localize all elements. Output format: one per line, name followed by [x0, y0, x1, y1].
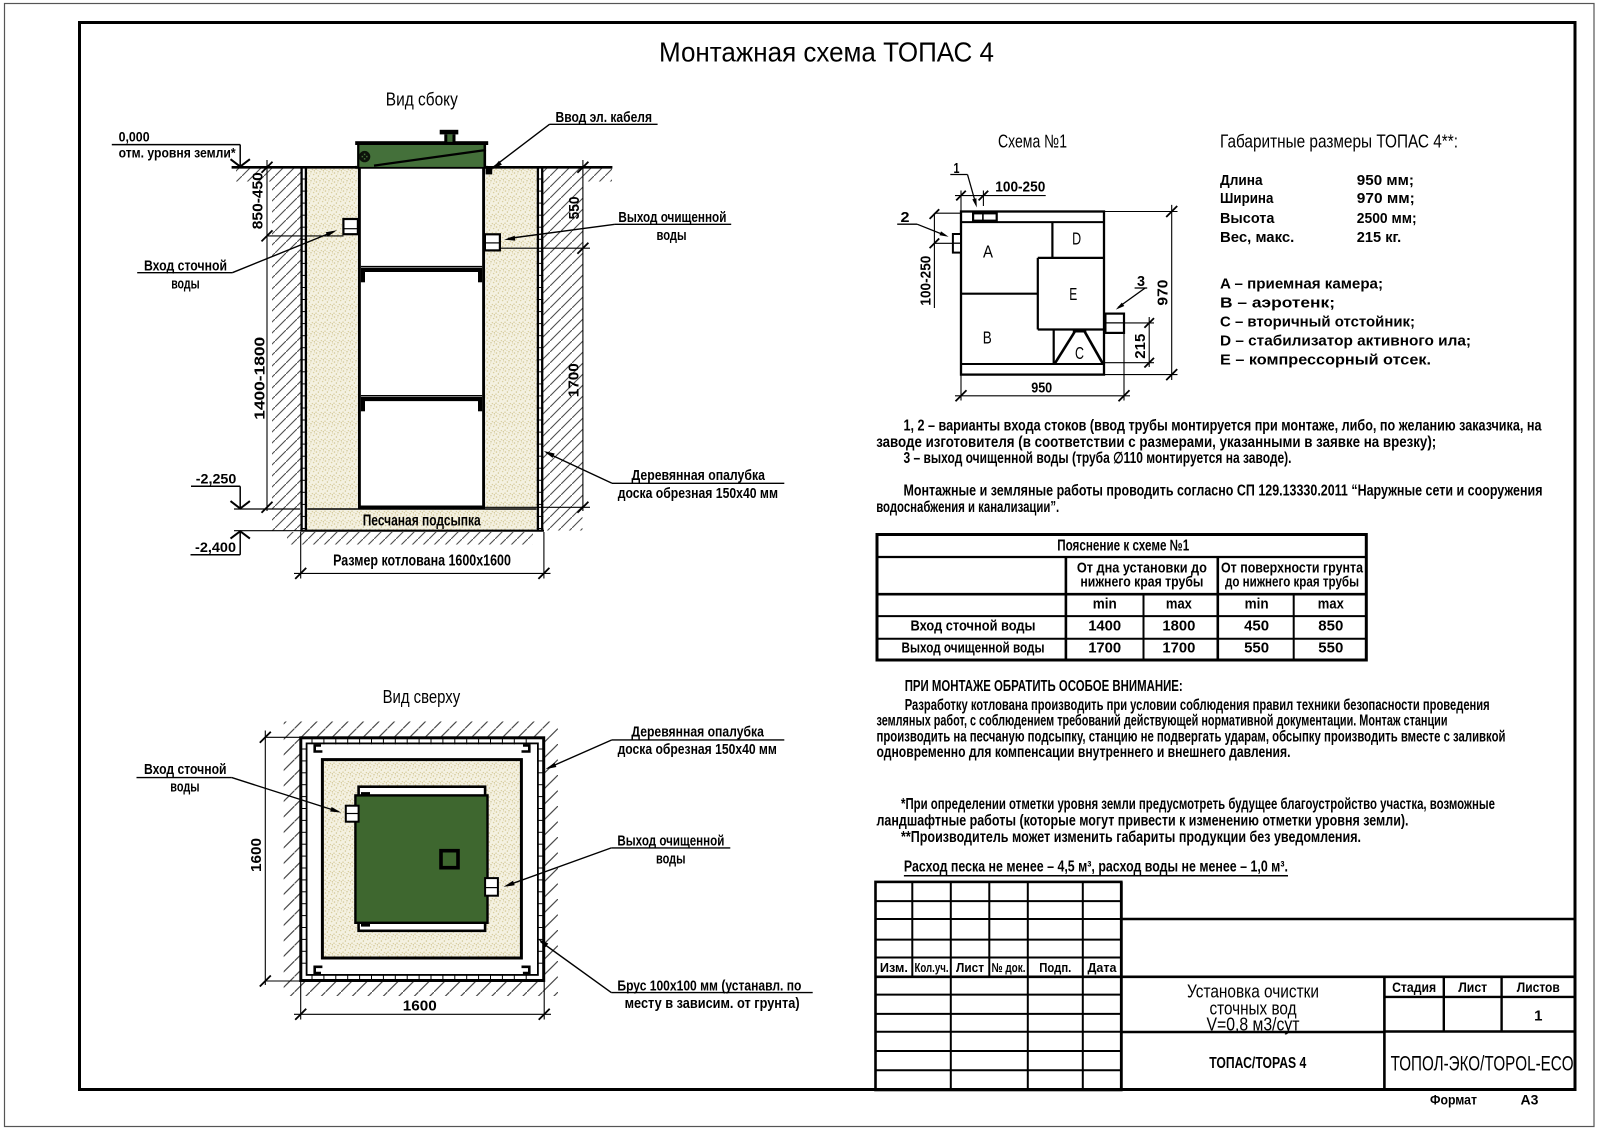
svg-text:215: 215: [1132, 334, 1149, 359]
svg-text:Формат: Формат: [1430, 1092, 1477, 1108]
svg-text:100-250: 100-250: [917, 256, 934, 306]
svg-text:1700: 1700: [566, 363, 583, 397]
svg-text:Монтажные и земляные работы пр: Монтажные и земляные работы проводить со…: [904, 483, 1543, 500]
svg-text:месту в зависим. от грунта): месту в зависим. от грунта): [625, 995, 800, 1012]
svg-text:воды: воды: [657, 227, 687, 244]
svg-text:воды: воды: [170, 779, 199, 796]
svg-text:доска обрезная 150х40 мм: доска обрезная 150х40 мм: [618, 485, 778, 502]
svg-text:Подп.: Подп.: [1039, 960, 1071, 975]
svg-text:1800: 1800: [1162, 618, 1195, 635]
svg-text:Изм.: Изм.: [880, 960, 908, 975]
svg-text:1700: 1700: [1088, 640, 1121, 657]
svg-text:Лист: Лист: [956, 960, 984, 975]
svg-text:B – аэротенк;: B – аэротенк;: [1220, 295, 1335, 312]
svg-text:Высота: Высота: [1220, 210, 1275, 227]
svg-text:Деревянная опалубка: Деревянная опалубка: [632, 467, 766, 484]
svg-text:min: min: [1245, 596, 1269, 613]
svg-text:водоснабжения и канализации”.: водоснабжения и канализации”.: [876, 499, 1059, 516]
svg-text:Вход сточной: Вход сточной: [144, 761, 227, 778]
svg-text:1700: 1700: [1162, 640, 1195, 657]
svg-text:550: 550: [566, 196, 583, 219]
svg-text:B: B: [983, 327, 992, 347]
svg-text:воды: воды: [656, 851, 686, 868]
svg-text:1, 2 – варианты входа стоков: 1, 2 – варианты входа стоков (ввод трубы…: [904, 417, 1542, 434]
svg-text:max: max: [1166, 596, 1193, 613]
svg-text:V=0,8 м3/сут: V=0,8 м3/сут: [1207, 1014, 1300, 1035]
svg-text:нижнего края трубы: нижнего края трубы: [1080, 573, 1203, 590]
svg-text:№ док.: № док.: [992, 960, 1026, 975]
svg-text:Выход очищенной: Выход очищенной: [617, 833, 724, 850]
svg-text:заводе изготовителя (в соответ: заводе изготовителя (в соответствии с ра…: [876, 434, 1436, 451]
svg-text:A: A: [983, 242, 993, 262]
svg-text:Кол.уч.: Кол.уч.: [915, 960, 949, 975]
svg-text:одновременно для компенсации в: одновременно для компенсации внутреннего…: [877, 744, 1291, 761]
svg-text:Вход сточной: Вход сточной: [144, 257, 227, 274]
svg-text:производить на песчаную подсып: производить на песчаную подсыпку, станци…: [877, 728, 1506, 745]
svg-text:Выход очищенной: Выход очищенной: [618, 209, 726, 226]
svg-text:-2,400: -2,400: [195, 540, 236, 555]
svg-text:отм. уровня земли*: отм. уровня земли*: [119, 146, 237, 161]
svg-text:550: 550: [1318, 640, 1343, 657]
svg-text:1600: 1600: [248, 838, 265, 872]
svg-text:3: 3: [1137, 273, 1145, 290]
svg-text:ТОПОЛ-ЭКО/TOPOL-ECO: ТОПОЛ-ЭКО/TOPOL-ECO: [1391, 1052, 1574, 1075]
svg-text:Вес, макс.: Вес, макс.: [1220, 229, 1294, 246]
svg-text:ПРИ МОНТАЖЕ ОБРАТИТЬ ОСОБОЕ ВН: ПРИ МОНТАЖЕ ОБРАТИТЬ ОСОБОЕ ВНИМАНИЕ:: [905, 678, 1183, 695]
svg-text:C – вторичный отстойник;: C – вторичный отстойник;: [1220, 314, 1415, 331]
svg-text:Монтажная схема ТОПАС 4: Монтажная схема ТОПАС 4: [659, 37, 994, 68]
svg-text:850-450: 850-450: [250, 172, 267, 229]
svg-text:550: 550: [1244, 640, 1269, 657]
svg-text:земляных работ, с соблюдением: земляных работ, с соблюдением требований…: [877, 713, 1448, 730]
svg-text:Разработку котлована производи: Разработку котлована производить при усл…: [905, 697, 1490, 714]
svg-text:0,000: 0,000: [119, 130, 150, 145]
svg-text:D: D: [1072, 229, 1081, 249]
svg-text:Стадия: Стадия: [1392, 979, 1436, 995]
svg-text:Ширина: Ширина: [1220, 190, 1274, 207]
svg-text:**Производитель может изменить: **Производитель может изменить габариты …: [901, 829, 1361, 846]
svg-text:1600: 1600: [403, 998, 437, 1015]
svg-text:Расход песка не менее – 4,5 м³: Расход песка не менее – 4,5 м³, расход в…: [904, 859, 1288, 876]
svg-text:воды: воды: [171, 275, 199, 292]
svg-text:215 кг.: 215 кг.: [1357, 229, 1401, 246]
svg-text:1400: 1400: [1088, 618, 1121, 635]
svg-text:850: 850: [1318, 618, 1343, 635]
svg-text:1400-1800: 1400-1800: [251, 337, 268, 420]
svg-text:Размер котлована 1600х1600: Размер котлована 1600х1600: [333, 552, 511, 569]
svg-text:Листов: Листов: [1517, 979, 1560, 995]
svg-text:Пояснение к схеме №1: Пояснение к схеме №1: [1057, 537, 1189, 554]
svg-text:*При определении отметки уровн: *При определении отметки уровня земли пр…: [901, 796, 1495, 813]
svg-text:ландшафтные работы (которые мо: ландшафтные работы (которые могут привес…: [877, 812, 1409, 829]
svg-text:А3: А3: [1521, 1092, 1539, 1108]
svg-text:970: 970: [1155, 280, 1172, 306]
svg-text:Габаритные размеры ТОПАС 4**:: Габаритные размеры ТОПАС 4**:: [1220, 131, 1458, 152]
svg-text:A – приемная камера;: A – приемная камера;: [1220, 276, 1383, 293]
svg-text:950 мм;: 950 мм;: [1357, 172, 1414, 189]
svg-text:E – компрессорный отсек.: E – компрессорный отсек.: [1220, 352, 1431, 369]
svg-text:D – стабилизатор активного ила: D – стабилизатор активного ила;: [1220, 333, 1471, 350]
svg-text:доска обрезная 150х40 мм: доска обрезная 150х40 мм: [618, 741, 777, 758]
svg-text:100-250: 100-250: [995, 179, 1045, 196]
svg-text:-2,250: -2,250: [196, 471, 237, 486]
svg-text:Ввод эл. кабеля: Ввод эл. кабеля: [556, 109, 653, 126]
svg-text:Деревянная опалубка: Деревянная опалубка: [631, 724, 764, 741]
svg-text:Дата: Дата: [1088, 960, 1118, 975]
svg-text:Вид сверху: Вид сверху: [383, 686, 461, 707]
svg-text:C: C: [1075, 343, 1084, 363]
svg-text:450: 450: [1244, 618, 1269, 635]
svg-text:2: 2: [901, 209, 910, 226]
svg-text:E: E: [1069, 284, 1077, 304]
svg-text:970 мм;: 970 мм;: [1357, 190, 1415, 207]
svg-text:3 – выход очищенной воды (труб: 3 – выход очищенной воды (труба ∅110 мон…: [904, 450, 1292, 467]
svg-text:Выход очищенной воды: Выход очищенной воды: [902, 640, 1045, 657]
svg-text:Лист: Лист: [1458, 979, 1487, 995]
svg-text:Вход сточной воды: Вход сточной воды: [911, 618, 1036, 635]
svg-text:950: 950: [1031, 380, 1052, 397]
svg-text:1: 1: [1534, 1008, 1542, 1025]
svg-text:max: max: [1318, 596, 1345, 613]
svg-text:ТОПАС/TOPAS 4: ТОПАС/TOPAS 4: [1209, 1055, 1306, 1072]
svg-text:min: min: [1093, 596, 1117, 613]
svg-text:до нижнего края трубы: до нижнего края трубы: [1225, 573, 1359, 590]
svg-text:Песчаная подсыпка: Песчаная подсыпка: [363, 513, 481, 530]
svg-text:2500 мм;: 2500 мм;: [1357, 210, 1417, 227]
svg-text:Вид сбоку: Вид сбоку: [386, 89, 459, 110]
svg-text:Брус 100х100 мм (устанавл. по: Брус 100х100 мм (устанавл. по: [617, 977, 801, 994]
svg-text:Схема №1: Схема №1: [998, 131, 1067, 152]
svg-text:Длина: Длина: [1220, 172, 1263, 189]
